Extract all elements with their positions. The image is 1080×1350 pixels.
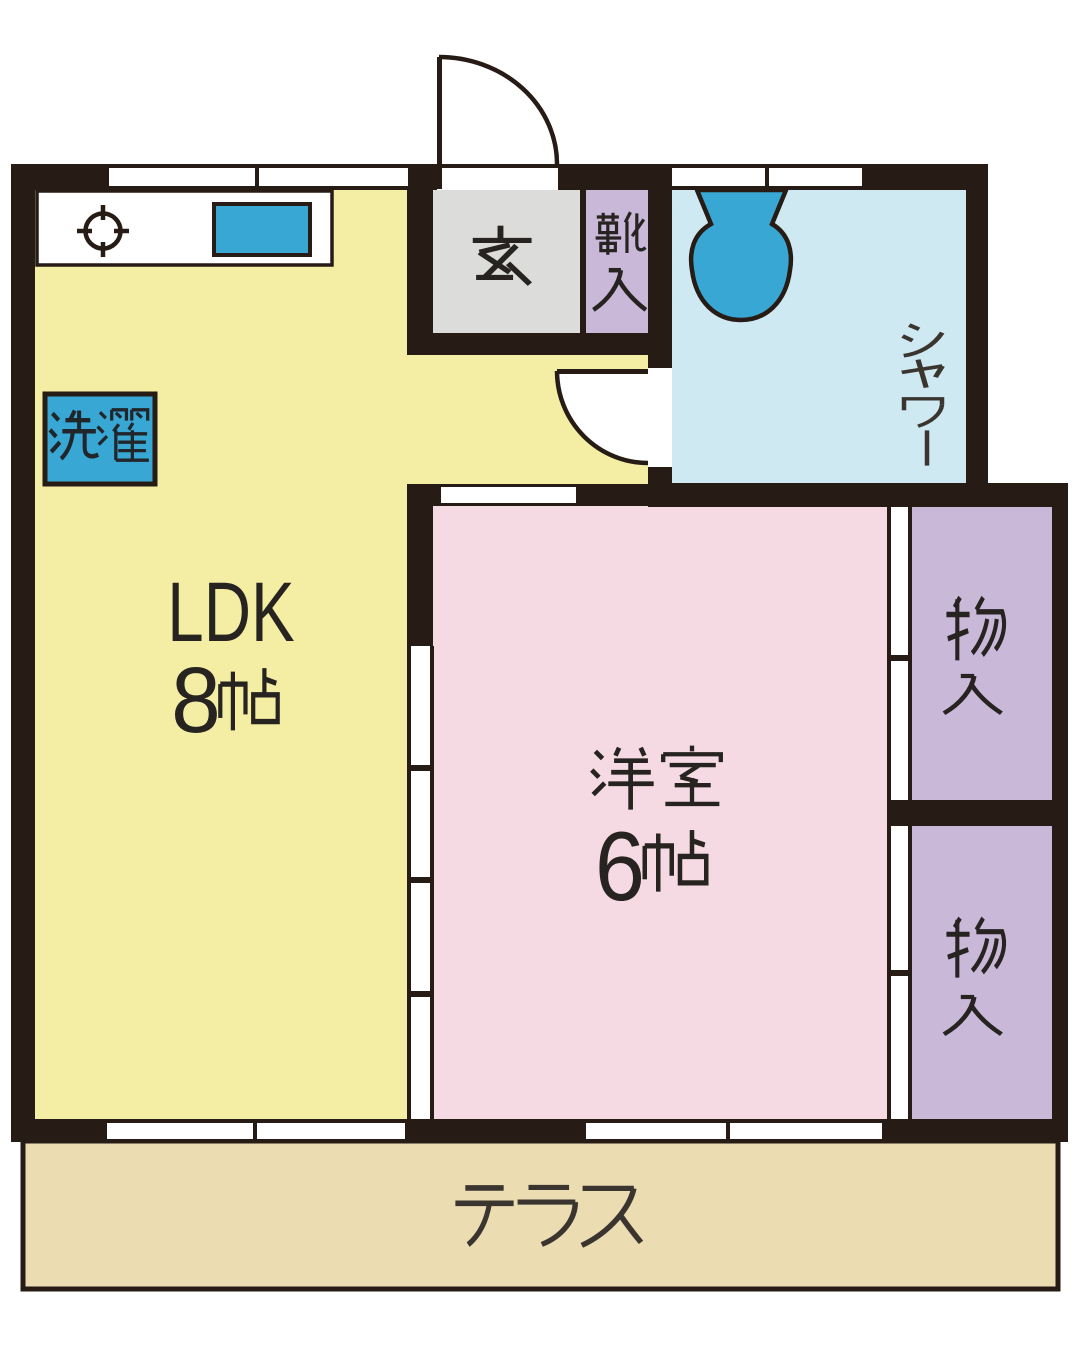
- svg-text:6: 6: [595, 812, 645, 921]
- svg-text:LDK: LDK: [167, 565, 294, 659]
- svg-text:8: 8: [171, 648, 221, 752]
